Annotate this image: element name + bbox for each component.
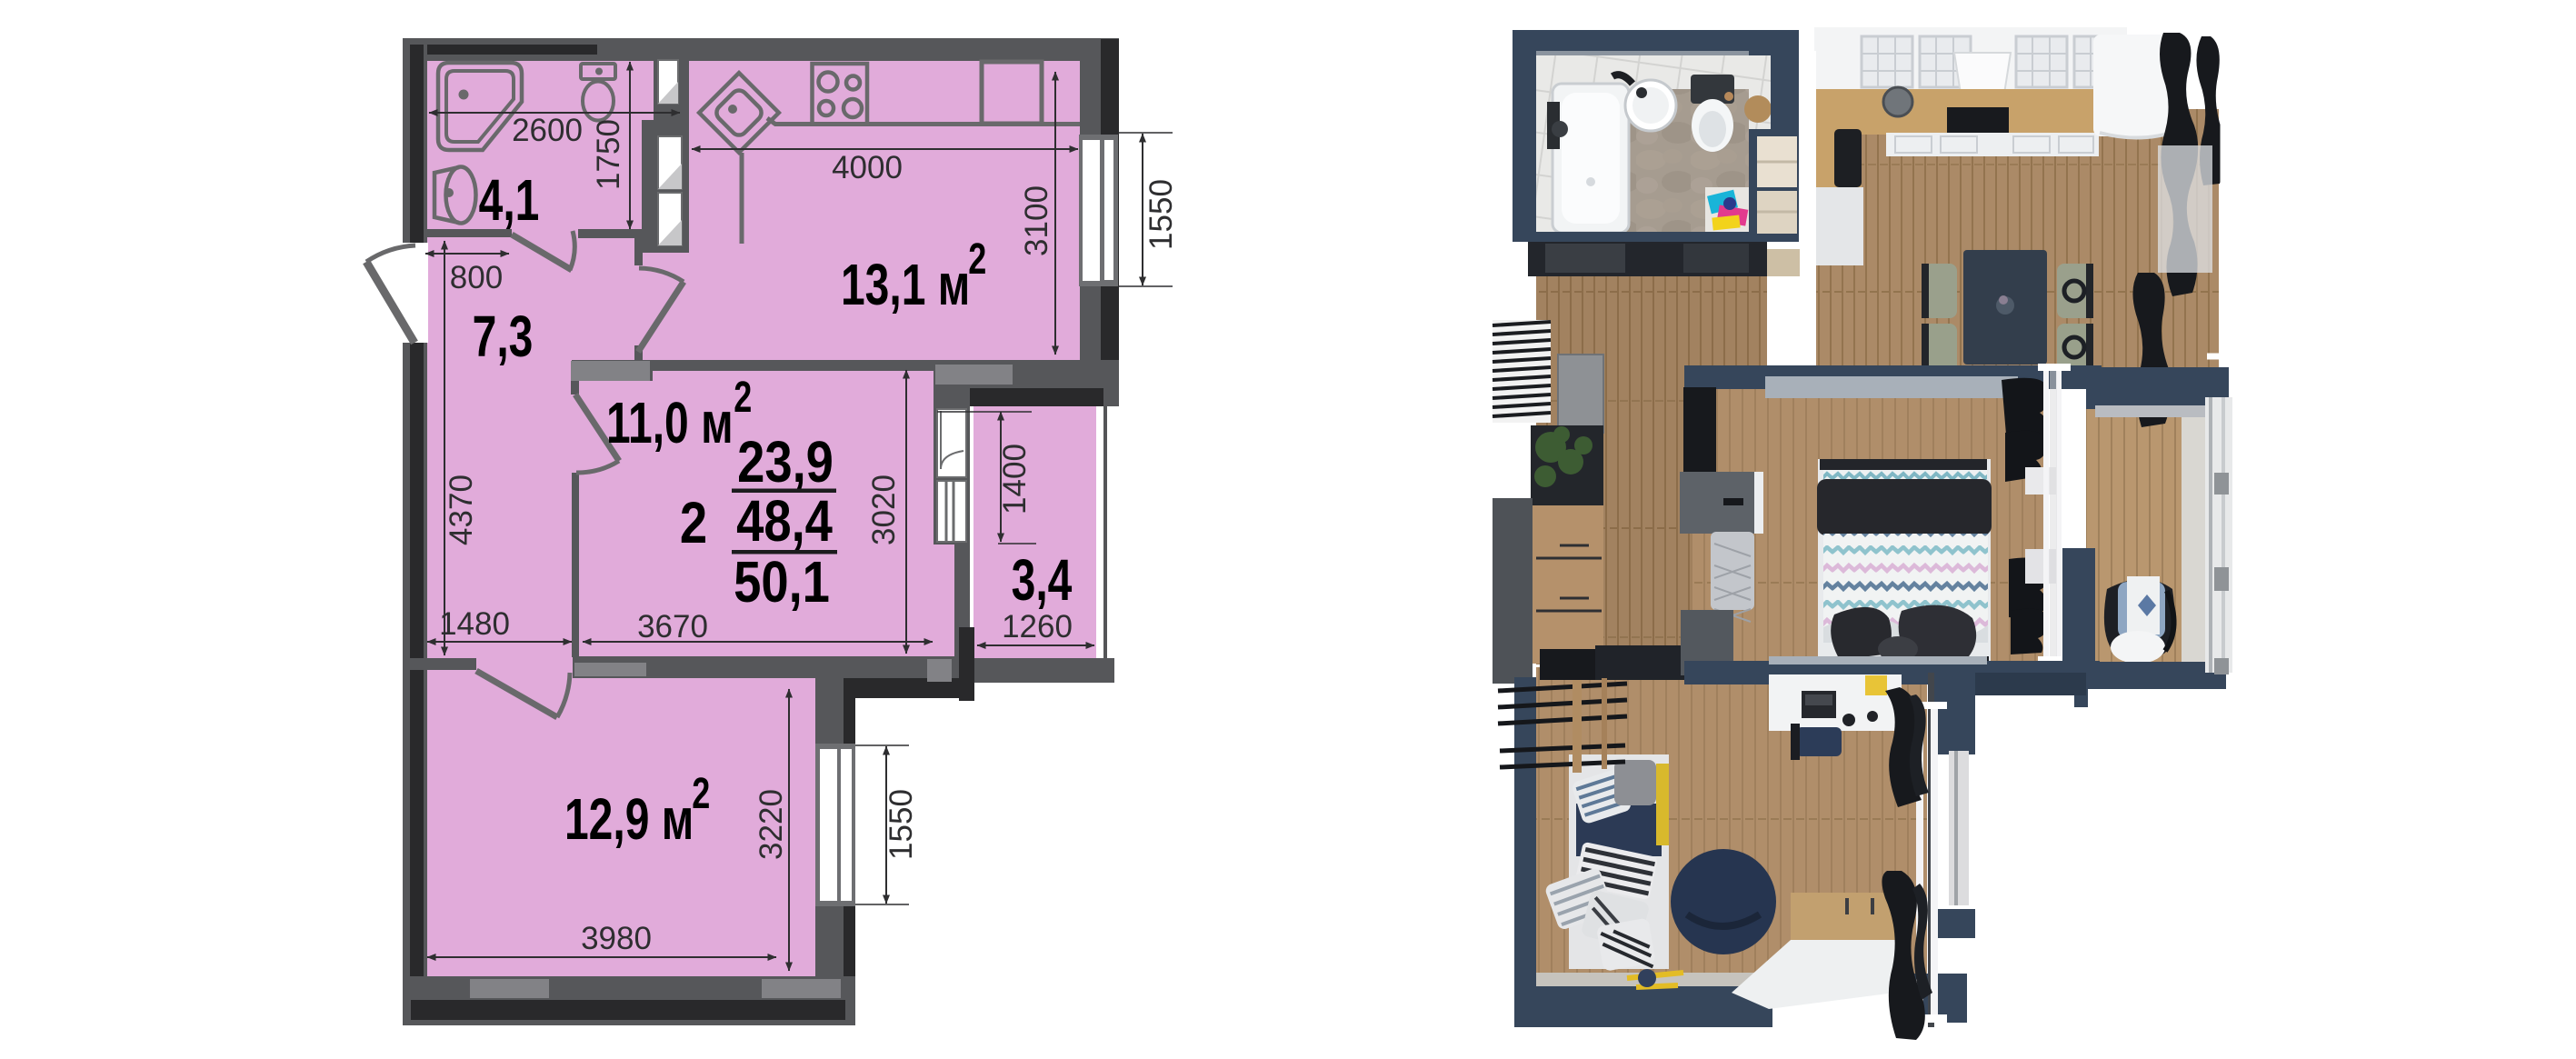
svg-text:2600: 2600: [512, 113, 583, 148]
svg-text:2: 2: [968, 235, 986, 283]
svg-text:1400: 1400: [997, 444, 1033, 515]
svg-text:4000: 4000: [832, 150, 903, 185]
svg-text:3100: 3100: [1019, 185, 1054, 256]
svg-text:1550: 1550: [1143, 179, 1179, 250]
svg-text:1750: 1750: [591, 119, 626, 190]
svg-text:3220: 3220: [754, 789, 789, 860]
svg-text:3020: 3020: [866, 475, 902, 545]
svg-text:1480: 1480: [439, 606, 510, 642]
svg-text:800: 800: [450, 260, 503, 295]
svg-text:12,9 м: 12,9 м: [564, 786, 694, 851]
svg-text:4,1: 4,1: [479, 167, 540, 232]
svg-text:2: 2: [680, 490, 707, 555]
svg-text:11,0 м: 11,0 м: [606, 390, 734, 455]
svg-text:2: 2: [734, 373, 752, 421]
svg-text:3670: 3670: [637, 609, 708, 644]
svg-text:1550: 1550: [884, 789, 919, 860]
svg-text:2: 2: [692, 769, 710, 817]
svg-text:23,9: 23,9: [737, 429, 834, 495]
svg-text:1260: 1260: [1002, 609, 1073, 644]
svg-text:50,1: 50,1: [734, 549, 830, 614]
svg-text:48,4: 48,4: [736, 488, 833, 554]
svg-text:13,1 м: 13,1 м: [841, 252, 970, 316]
svg-text:3,4: 3,4: [1012, 547, 1073, 612]
svg-text:4370: 4370: [444, 475, 479, 545]
svg-text:7,3: 7,3: [473, 304, 534, 368]
svg-text:3980: 3980: [581, 921, 652, 956]
